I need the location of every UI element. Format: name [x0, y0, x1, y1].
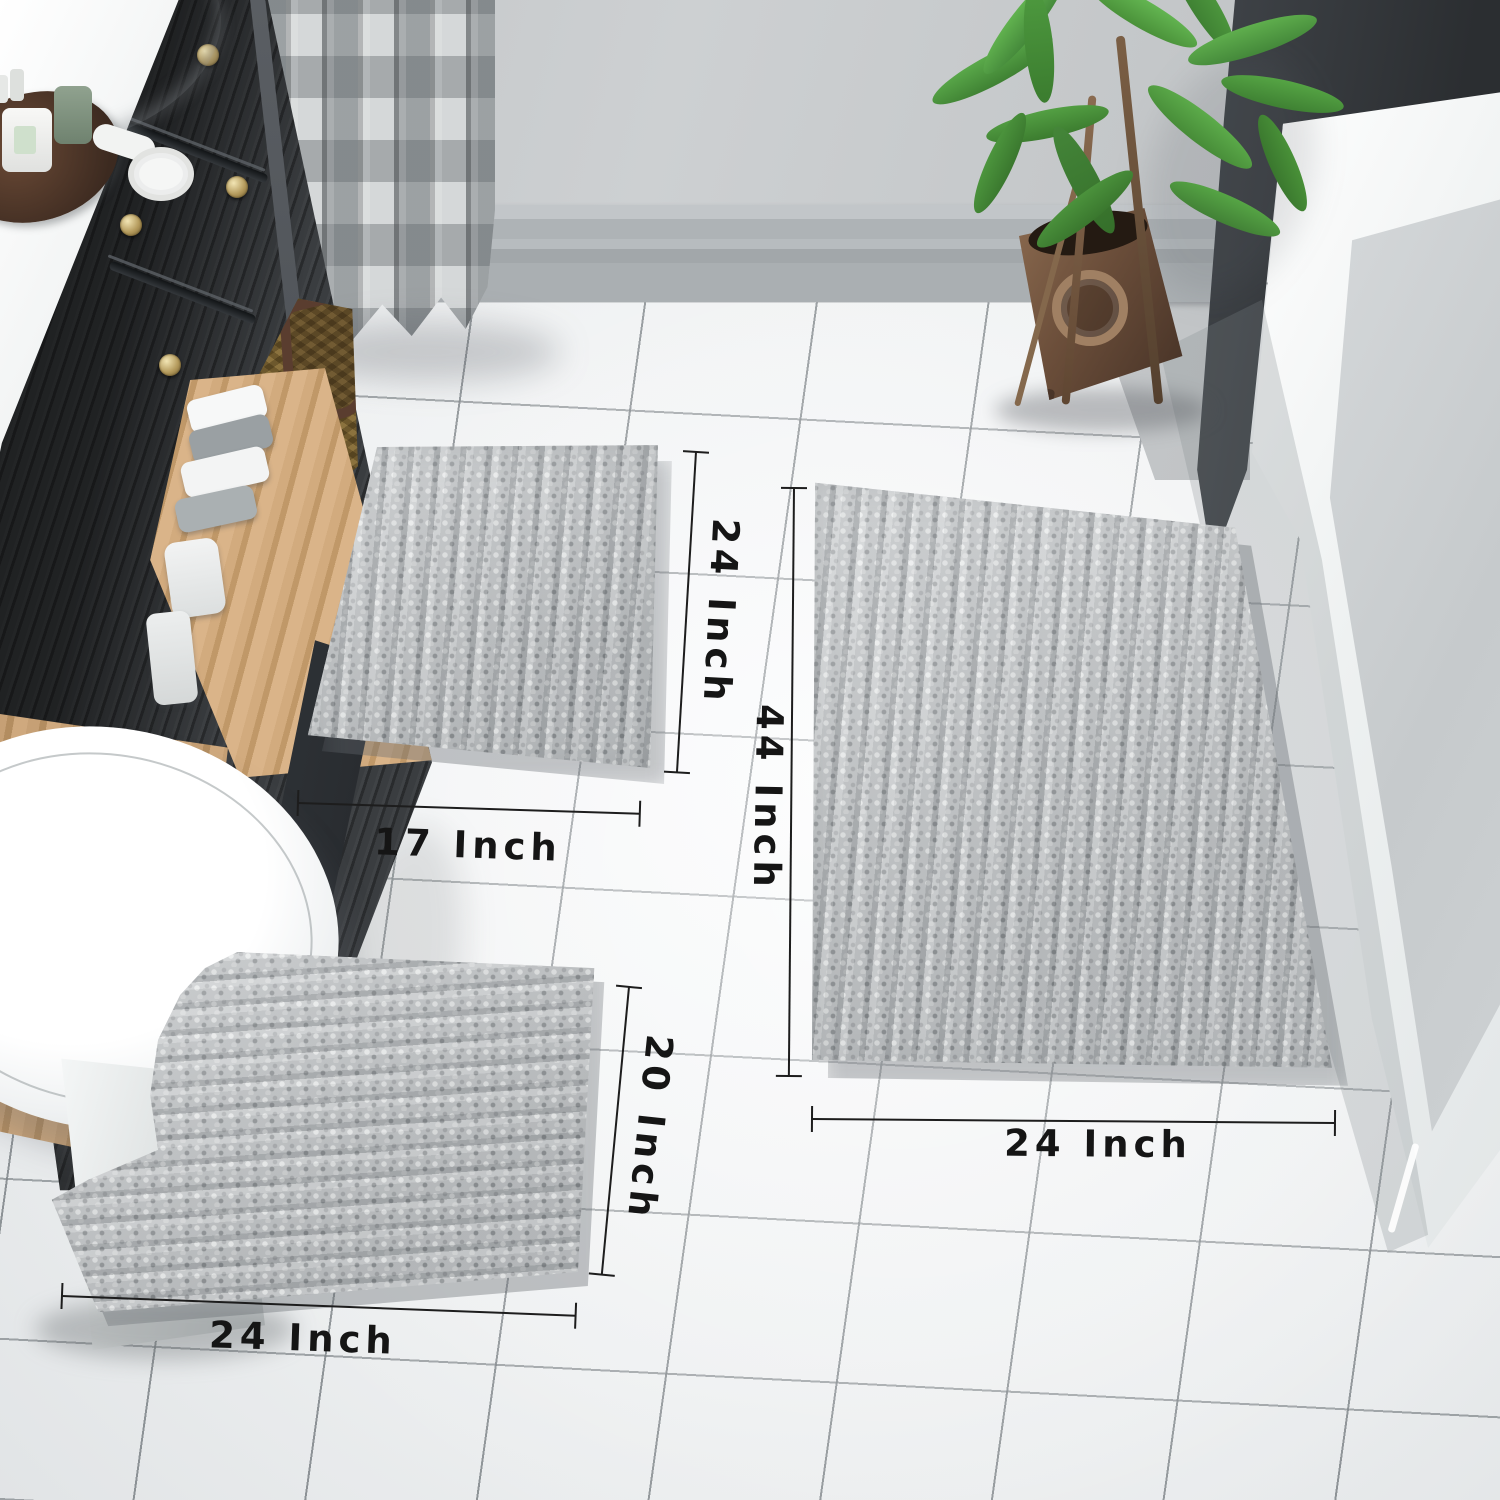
green-bottle — [54, 86, 92, 144]
plant-leaf — [1164, 172, 1285, 246]
small-bottle — [10, 69, 24, 101]
bathroom-product-scene: 24 Inch 17 Inch 44 Inch 24 Inch 20 Inch … — [0, 0, 1500, 1500]
label-large-rug-height: 44 Inch — [745, 704, 791, 892]
canister — [145, 610, 198, 706]
plant — [930, 0, 1310, 440]
plant-leaf — [1249, 110, 1315, 216]
label-contour-rug-width: 24 Inch — [208, 1313, 397, 1363]
label-large-rug-width: 24 Inch — [1004, 1122, 1192, 1167]
label-small-rug-width: 17 Inch — [373, 820, 562, 870]
candle-jar — [2, 108, 52, 172]
canister — [163, 537, 227, 620]
plant-leaf — [1081, 0, 1203, 57]
drawer-knob — [226, 176, 248, 198]
drawer-knob — [159, 354, 181, 376]
toiletries-tray-group — [0, 85, 170, 225]
rolled-towel — [128, 147, 194, 201]
plant-leaf — [1019, 0, 1059, 104]
small-bottle — [0, 75, 8, 103]
candle-label — [14, 126, 36, 154]
